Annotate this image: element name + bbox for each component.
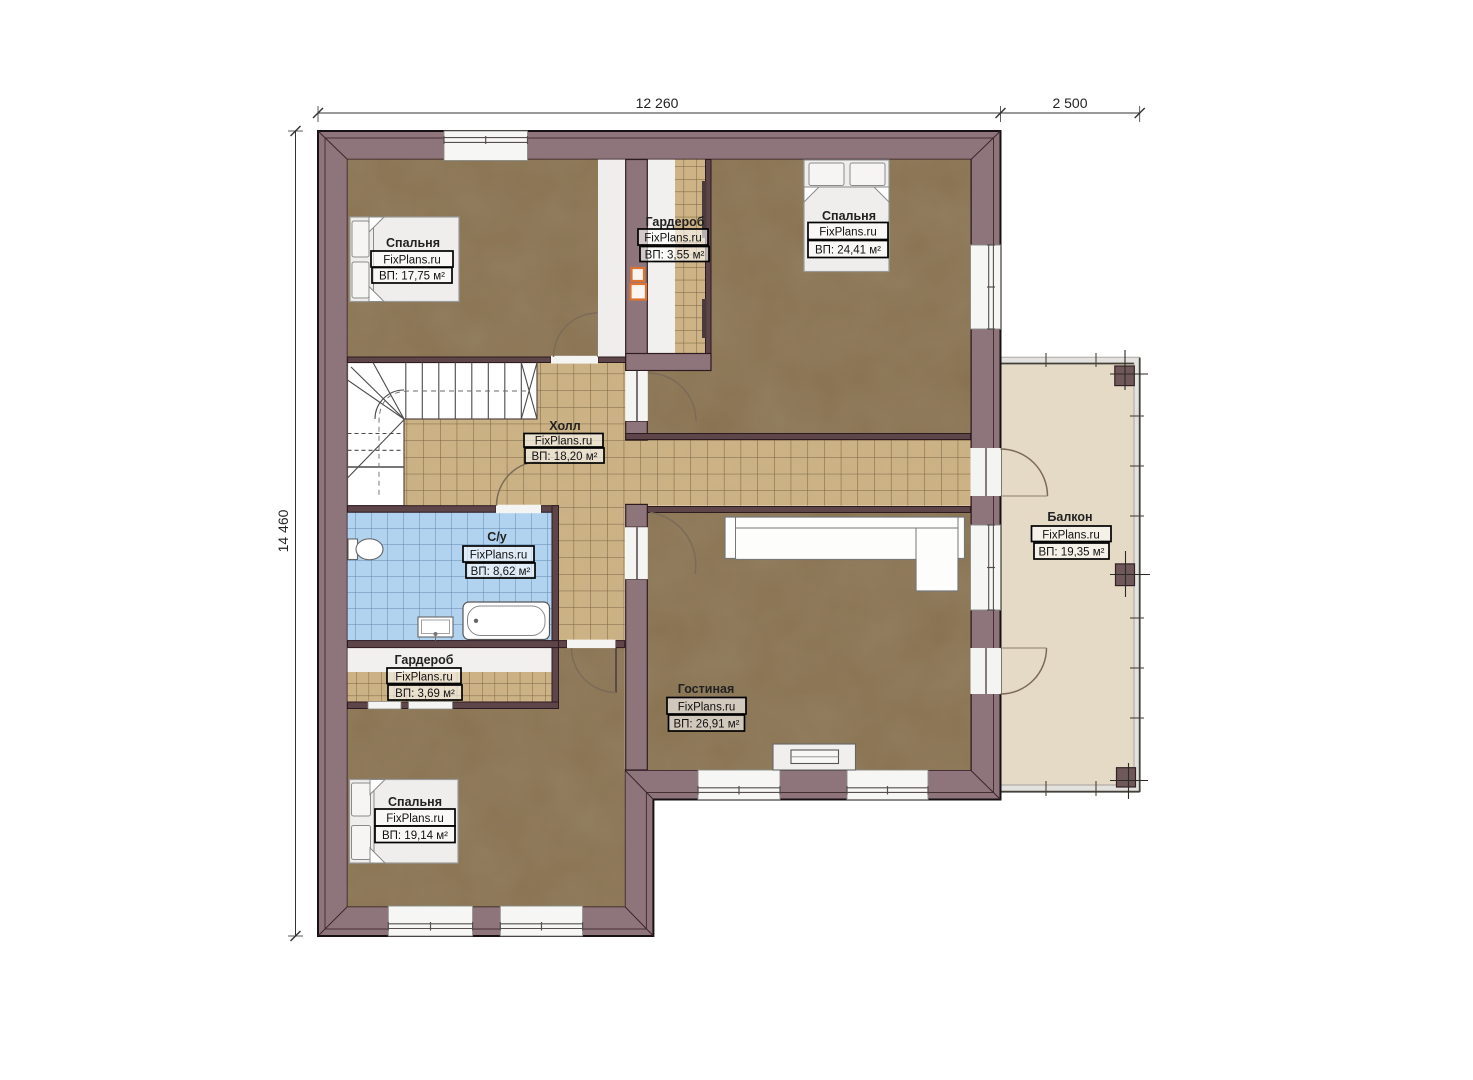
svg-text:FixPlans.ru: FixPlans.ru [1042,529,1100,541]
svg-text:Гардероб: Гардероб [645,215,704,229]
svg-text:ВП: 24,41 м²: ВП: 24,41 м² [815,245,881,257]
svg-text:2 500: 2 500 [1052,95,1087,111]
svg-text:FixPlans.ru: FixPlans.ru [386,813,444,825]
svg-text:Спальня: Спальня [386,236,440,250]
svg-text:FixPlans.ru: FixPlans.ru [678,701,736,713]
svg-text:ВП: 17,75 м²: ВП: 17,75 м² [379,271,445,283]
svg-text:Гардероб: Гардероб [394,653,453,667]
svg-text:12 260: 12 260 [636,95,679,111]
svg-text:Холл: Холл [549,419,580,433]
svg-text:С/у: С/у [487,530,507,544]
svg-text:ВП: 8,62 м²: ВП: 8,62 м² [471,566,531,578]
svg-text:ВП: 3,69 м²: ВП: 3,69 м² [395,688,455,700]
svg-text:ВП: 18,20 м²: ВП: 18,20 м² [531,451,597,463]
svg-text:14 460: 14 460 [275,509,291,552]
svg-text:ВП: 19,14 м²: ВП: 19,14 м² [382,830,448,842]
svg-text:FixPlans.ru: FixPlans.ru [383,255,441,267]
svg-text:FixPlans.ru: FixPlans.ru [644,233,702,245]
svg-text:FixPlans.ru: FixPlans.ru [535,435,593,447]
svg-text:ВП: 3,55 м²: ВП: 3,55 м² [645,250,705,262]
svg-text:FixPlans.ru: FixPlans.ru [819,227,877,239]
svg-text:Спальня: Спальня [822,209,876,223]
svg-text:ВП: 26,91 м²: ВП: 26,91 м² [673,719,739,731]
svg-text:FixPlans.ru: FixPlans.ru [470,550,528,562]
svg-text:ВП: 19,35 м²: ВП: 19,35 м² [1038,547,1104,559]
svg-text:FixPlans.ru: FixPlans.ru [395,671,453,683]
svg-text:Гостиная: Гостиная [678,682,735,696]
svg-text:Балкон: Балкон [1047,510,1092,524]
svg-text:Спальня: Спальня [388,795,442,809]
